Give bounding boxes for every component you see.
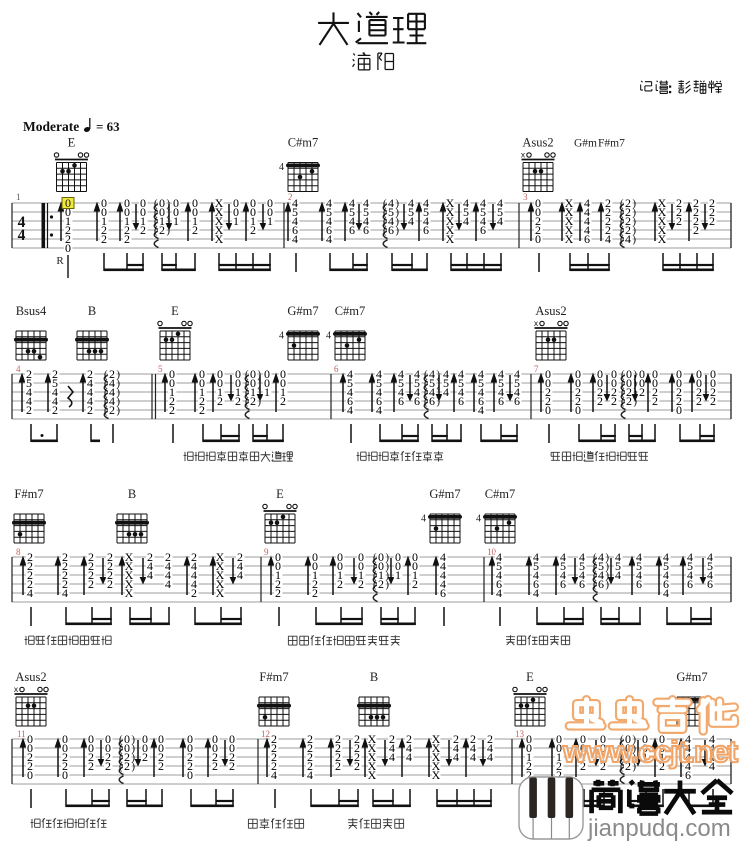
svg-text:2: 2 — [107, 577, 113, 591]
svg-text:4: 4 — [476, 514, 481, 525]
svg-text:2: 2 — [412, 577, 418, 591]
svg-text:12: 12 — [261, 729, 270, 739]
svg-text:1: 1 — [173, 214, 179, 228]
svg-text:B: B — [370, 670, 378, 684]
svg-text:X: X — [368, 768, 377, 782]
svg-text:2: 2 — [217, 394, 223, 408]
svg-text:2: 2 — [280, 394, 286, 408]
svg-text:4: 4 — [406, 750, 412, 764]
svg-text:6: 6 — [414, 394, 420, 408]
svg-text:6: 6 — [349, 223, 355, 237]
svg-text:6: 6 — [598, 577, 604, 591]
svg-text:(: ( — [621, 397, 625, 408]
svg-text:2: 2 — [159, 223, 165, 237]
svg-text:6: 6 — [423, 223, 429, 237]
svg-text:4: 4 — [605, 232, 611, 246]
svg-text:E: E — [171, 304, 179, 318]
svg-text:2: 2 — [26, 403, 32, 417]
svg-text:4: 4 — [326, 232, 332, 246]
svg-text:11: 11 — [17, 729, 26, 739]
svg-text:F#m7: F#m7 — [598, 138, 625, 150]
svg-text:4: 4 — [663, 586, 669, 600]
svg-text:): ) — [116, 406, 120, 417]
svg-text:4: 4 — [443, 385, 449, 399]
svg-text:): ) — [385, 580, 389, 591]
svg-text:): ) — [131, 762, 135, 773]
svg-text:6: 6 — [579, 577, 585, 591]
svg-text:X: X — [216, 586, 225, 600]
svg-text:1: 1 — [267, 214, 273, 228]
svg-text:Asus2: Asus2 — [15, 670, 46, 684]
svg-text:4: 4 — [497, 214, 503, 228]
svg-text:4: 4 — [237, 568, 243, 582]
svg-text:4: 4 — [421, 514, 426, 525]
svg-text:G#m7: G#m7 — [287, 304, 318, 318]
svg-text:4: 4 — [165, 577, 171, 591]
svg-text:www.ccjt.net: www.ccjt.net — [562, 734, 738, 769]
svg-text:Asus2: Asus2 — [535, 304, 566, 318]
svg-text:0: 0 — [187, 768, 193, 782]
svg-text:2: 2 — [611, 394, 617, 408]
svg-text:6: 6 — [584, 232, 590, 246]
svg-text:X: X — [215, 232, 224, 246]
svg-text:6: 6 — [398, 394, 404, 408]
svg-text:9: 9 — [264, 547, 269, 557]
svg-text:2: 2 — [88, 759, 94, 773]
svg-text:4: 4 — [487, 750, 493, 764]
svg-text:2: 2 — [101, 232, 107, 246]
svg-text:5: 5 — [158, 364, 163, 374]
svg-text:2: 2 — [250, 394, 256, 408]
svg-text:R: R — [56, 255, 64, 267]
svg-text:2: 2 — [87, 403, 93, 417]
svg-text:4: 4 — [292, 232, 298, 246]
svg-text:1: 1 — [16, 192, 21, 202]
svg-text:4: 4 — [533, 586, 539, 600]
svg-text:Asus2: Asus2 — [522, 136, 553, 150]
svg-text:4: 4 — [326, 331, 331, 342]
svg-text:): ) — [395, 226, 399, 237]
svg-text:4: 4 — [453, 750, 459, 764]
svg-text:): ) — [632, 235, 636, 246]
svg-text:0: 0 — [535, 232, 541, 246]
svg-text:B: B — [128, 487, 136, 501]
svg-text:6: 6 — [707, 577, 713, 591]
svg-text:Moderate: Moderate — [23, 119, 79, 134]
svg-text:2: 2 — [212, 759, 218, 773]
svg-text:E: E — [526, 670, 534, 684]
svg-text:0: 0 — [575, 403, 581, 417]
svg-text:2: 2 — [124, 759, 130, 773]
svg-text:2: 2 — [378, 577, 384, 591]
svg-text:Bsus4: Bsus4 — [16, 304, 47, 318]
svg-text:6: 6 — [514, 394, 520, 408]
svg-text:C#m7: C#m7 — [485, 487, 516, 501]
svg-text:G#m7: G#m7 — [429, 487, 460, 501]
svg-text:4: 4 — [625, 232, 631, 246]
svg-text:X: X — [565, 232, 574, 246]
svg-text:(: ( — [119, 762, 123, 773]
svg-text:2: 2 — [312, 586, 318, 600]
svg-text:F#m7: F#m7 — [14, 487, 43, 501]
svg-text:1: 1 — [233, 214, 239, 228]
svg-text:6: 6 — [687, 577, 693, 591]
svg-text:= 63: = 63 — [96, 119, 120, 134]
svg-text:4: 4 — [615, 568, 621, 582]
svg-text:2: 2 — [652, 394, 658, 408]
svg-text:F#m7: F#m7 — [259, 670, 288, 684]
svg-text:2: 2 — [169, 403, 175, 417]
svg-text:6: 6 — [388, 223, 394, 237]
svg-text:4: 4 — [376, 403, 382, 417]
svg-text:2: 2 — [158, 759, 164, 773]
svg-text:G#m: G#m — [574, 138, 597, 150]
svg-text:6: 6 — [560, 577, 566, 591]
svg-text:4: 4 — [463, 214, 469, 228]
svg-text:X: X — [446, 232, 455, 246]
svg-text:2: 2 — [597, 394, 603, 408]
svg-text:): ) — [605, 580, 609, 591]
svg-text:6: 6 — [636, 577, 642, 591]
svg-text:2: 2 — [676, 214, 682, 228]
svg-text:(: ( — [245, 397, 249, 408]
svg-text:(: ( — [373, 580, 377, 591]
svg-text:(: ( — [593, 580, 597, 591]
svg-text:0: 0 — [65, 241, 71, 255]
svg-text:4: 4 — [279, 162, 284, 173]
svg-text:4: 4 — [389, 750, 395, 764]
svg-text:2: 2 — [235, 394, 241, 408]
svg-text:4: 4 — [496, 586, 502, 600]
svg-text:2: 2 — [354, 759, 360, 773]
svg-text:jianpudq.com: jianpudq.com — [587, 815, 731, 842]
svg-text:2: 2 — [696, 394, 702, 408]
svg-text:2: 2 — [140, 223, 146, 237]
svg-text:0: 0 — [27, 768, 33, 782]
svg-text:2: 2 — [626, 394, 632, 408]
svg-text:8: 8 — [16, 547, 21, 557]
svg-text:E: E — [276, 487, 284, 501]
svg-text:(: ( — [383, 226, 387, 237]
svg-text:(: ( — [424, 397, 428, 408]
svg-text:0: 0 — [62, 768, 68, 782]
svg-text:2: 2 — [335, 759, 341, 773]
svg-text:2: 2 — [109, 403, 115, 417]
svg-text:(: ( — [620, 235, 624, 246]
svg-text:0: 0 — [545, 403, 551, 417]
svg-text:4: 4 — [307, 768, 313, 782]
svg-text:2: 2 — [124, 232, 130, 246]
svg-text:2: 2 — [275, 586, 281, 600]
svg-text:2: 2 — [337, 577, 343, 591]
svg-text:3: 3 — [523, 192, 528, 202]
svg-text:2: 2 — [710, 394, 716, 408]
svg-text:B: B — [88, 304, 96, 318]
svg-text:2: 2 — [639, 385, 645, 399]
svg-text:2: 2 — [250, 223, 256, 237]
svg-text:4: 4 — [478, 403, 484, 417]
svg-text:2: 2 — [709, 214, 715, 228]
svg-text:4: 4 — [16, 364, 21, 374]
svg-text:4: 4 — [470, 750, 476, 764]
svg-text:X: X — [125, 586, 134, 600]
svg-text:1: 1 — [395, 568, 401, 582]
svg-text:13: 13 — [515, 729, 525, 739]
svg-text:1: 1 — [264, 385, 270, 399]
svg-text:(: ( — [104, 406, 108, 417]
svg-text:4: 4 — [408, 214, 414, 228]
svg-text:2: 2 — [105, 759, 111, 773]
svg-text:7: 7 — [534, 364, 539, 374]
svg-text:2: 2 — [88, 577, 94, 591]
svg-text:6: 6 — [458, 394, 464, 408]
svg-text:6: 6 — [334, 364, 339, 374]
svg-text:6: 6 — [363, 223, 369, 237]
svg-text:4: 4 — [271, 768, 277, 782]
svg-text:4: 4 — [147, 568, 153, 582]
svg-text:C#m7: C#m7 — [335, 304, 366, 318]
svg-text:2: 2 — [192, 223, 198, 237]
svg-text:C#m7: C#m7 — [288, 136, 319, 150]
svg-text:0: 0 — [676, 403, 682, 417]
svg-text:4: 4 — [62, 586, 68, 600]
svg-text:2: 2 — [191, 586, 197, 600]
svg-text:2: 2 — [199, 403, 205, 417]
svg-text:6: 6 — [480, 223, 486, 237]
svg-text:2: 2 — [229, 759, 235, 773]
svg-text:6: 6 — [440, 586, 446, 600]
svg-text:4: 4 — [18, 227, 26, 244]
svg-text:2: 2 — [142, 750, 148, 764]
svg-text:X: X — [432, 768, 441, 782]
svg-text:X: X — [658, 232, 667, 246]
svg-text:4: 4 — [27, 586, 33, 600]
svg-text:6: 6 — [685, 768, 691, 782]
svg-text:6: 6 — [429, 394, 435, 408]
svg-text:0: 0 — [65, 196, 71, 210]
svg-text:2: 2 — [693, 223, 699, 237]
svg-text:4: 4 — [347, 403, 353, 417]
svg-text:4: 4 — [279, 331, 284, 342]
svg-text:2: 2 — [358, 577, 364, 591]
svg-text:G#m7: G#m7 — [676, 670, 707, 684]
svg-text:E: E — [68, 136, 76, 150]
svg-text:(: ( — [154, 226, 158, 237]
svg-text:2: 2 — [52, 403, 58, 417]
svg-text:6: 6 — [498, 394, 504, 408]
